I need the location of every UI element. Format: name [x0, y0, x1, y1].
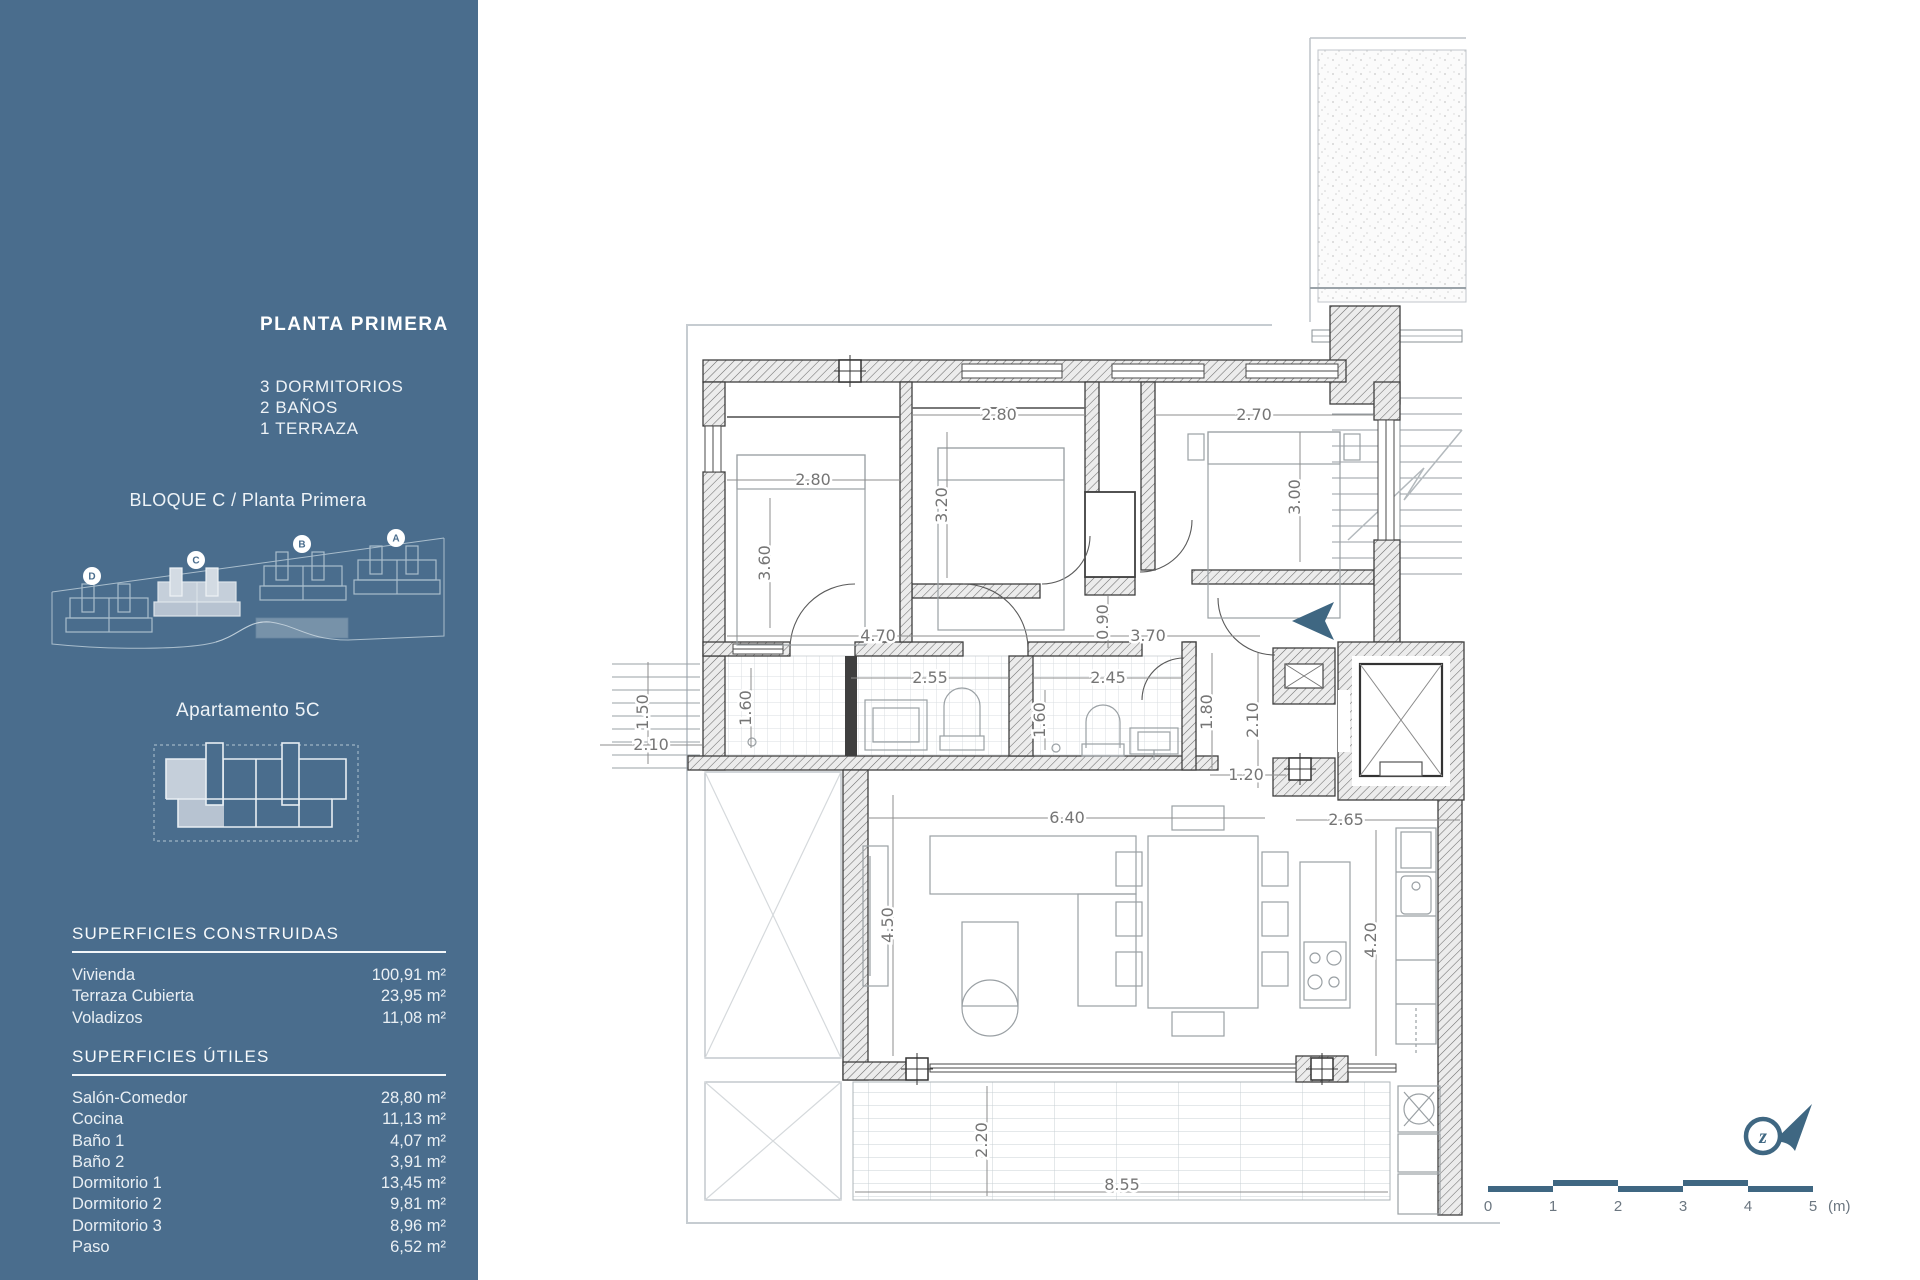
- row-value: 8,96 m²: [390, 1216, 446, 1237]
- dim-label: 2.45: [1090, 668, 1126, 687]
- row-value: 4,07 m²: [390, 1131, 446, 1152]
- scale-bar: 0 1 2 3 4 5 (m): [1488, 1180, 1848, 1224]
- bath1-partition: [845, 656, 857, 756]
- elevator: [1338, 656, 1450, 786]
- table-row: Voladizos 11,08 m²: [72, 1008, 446, 1029]
- dim-label: 1.60: [736, 690, 755, 726]
- feature-terrace: 1 TERRAZA: [260, 418, 404, 439]
- scale-segment: [1488, 1186, 1553, 1192]
- sidebar: PLANTA PRIMERA 3 DORMITORIOS 2 BAÑOS 1 T…: [0, 0, 478, 1280]
- scale-tick: 5: [1809, 1198, 1817, 1215]
- table-row: Vivienda 100,91 m²: [72, 965, 446, 986]
- row-label: Cocina: [72, 1109, 123, 1130]
- north-icon: z: [1737, 1094, 1821, 1174]
- row-label: Salón-Comedor: [72, 1088, 188, 1109]
- dim-label: 2.10: [633, 735, 669, 754]
- dim-label: 1.50: [633, 694, 652, 730]
- dim-label: 3.70: [1130, 626, 1166, 645]
- dim-label: 1.20: [1228, 765, 1264, 784]
- scale-tick: 1: [1549, 1198, 1557, 1215]
- table-row: Cocina 11,13 m²: [72, 1109, 446, 1130]
- divider: [72, 1074, 446, 1076]
- scale-tick: 4: [1744, 1198, 1752, 1215]
- row-label: Paso: [72, 1237, 110, 1258]
- constructed-table: SUPERFICIES CONSTRUIDAS Vivienda 100,91 …: [72, 924, 446, 1029]
- walls: [688, 306, 1464, 1215]
- scale-segment: [1748, 1186, 1813, 1192]
- row-value: 11,13 m²: [382, 1109, 446, 1130]
- dim-label: 0.90: [1093, 604, 1112, 640]
- feature-baths: 2 BAÑOS: [260, 397, 404, 418]
- site-badges: D C B A: [83, 529, 405, 585]
- row-label: Vivienda: [72, 965, 135, 986]
- row-value: 11,08 m²: [382, 1008, 446, 1029]
- divider: [72, 951, 446, 953]
- dim-label: 2.80: [981, 405, 1017, 424]
- dim-label: 6.40: [1049, 808, 1085, 827]
- unit-diagram: [150, 735, 365, 850]
- block-label: BLOQUE C / Planta Primera: [38, 490, 458, 511]
- table-row: Dormitorio 1 13,45 m²: [72, 1173, 446, 1194]
- table-row: Salón-Comedor 28,80 m²: [72, 1088, 446, 1109]
- row-value: 100,91 m²: [372, 965, 446, 986]
- useful-heading: SUPERFICIES ÚTILES: [72, 1047, 446, 1067]
- feature-list: 3 DORMITORIOS 2 BAÑOS 1 TERRAZA: [260, 376, 404, 439]
- dim-label: 2.70: [1236, 405, 1272, 424]
- table-row: Dormitorio 3 8,96 m²: [72, 1216, 446, 1237]
- wardrobe: [1085, 492, 1135, 577]
- useful-table: SUPERFICIES ÚTILES Salón-Comedor 28,80 m…: [72, 1047, 446, 1258]
- row-label: Dormitorio 1: [72, 1173, 162, 1194]
- scale-segment: [1618, 1186, 1683, 1192]
- row-value: 13,45 m²: [381, 1173, 446, 1194]
- table-row: Dormitorio 2 9,81 m²: [72, 1194, 446, 1215]
- row-label: Baño 1: [72, 1131, 124, 1152]
- row-label: Voladizos: [72, 1008, 143, 1029]
- dim-label: 4.20: [1361, 922, 1380, 958]
- table-row: Baño 1 4,07 m²: [72, 1131, 446, 1152]
- badge-c: C: [192, 556, 199, 567]
- dim-label: 3.60: [755, 545, 774, 581]
- row-value: 3,91 m²: [390, 1152, 446, 1173]
- dim-label: 2.20: [972, 1122, 991, 1158]
- vent-shaft: [1285, 664, 1323, 688]
- table-row: Terraza Cubierta 23,95 m²: [72, 986, 446, 1007]
- dim-label: 2.10: [1243, 702, 1262, 738]
- bath1-floor: [725, 656, 1009, 756]
- site-block-a[interactable]: [354, 546, 440, 594]
- row-label: Dormitorio 3: [72, 1216, 162, 1237]
- patio-void: [705, 772, 841, 1200]
- row-value: 23,95 m²: [381, 986, 446, 1007]
- entry-arrow-icon: [1292, 602, 1334, 640]
- scale-tick: 2: [1614, 1198, 1622, 1215]
- row-label: Dormitorio 2: [72, 1194, 162, 1215]
- scale-segment: [1683, 1180, 1748, 1186]
- plan-title: PLANTA PRIMERA: [260, 314, 449, 336]
- dim-label: 2.80: [795, 470, 831, 489]
- row-label: Baño 2: [72, 1152, 124, 1173]
- constructed-heading: SUPERFICIES CONSTRUIDAS: [72, 924, 446, 944]
- site-block-b[interactable]: [260, 552, 346, 600]
- feature-bedrooms: 3 DORMITORIOS: [260, 376, 404, 397]
- site-block-c[interactable]: [154, 568, 240, 616]
- scale-tick: 3: [1679, 1198, 1687, 1215]
- scale-tick: 0: [1484, 1198, 1492, 1215]
- table-row: Paso 6,52 m²: [72, 1237, 446, 1258]
- dim-label: 1.60: [1030, 702, 1049, 738]
- scale-segment: [1553, 1180, 1618, 1186]
- page: 2.80 2.80 2.70 3.60 3.20 3.00 4.70 3.70 …: [0, 0, 1920, 1280]
- site-block-d[interactable]: [66, 584, 152, 632]
- badge-b: B: [298, 540, 305, 551]
- dim-label: 4.70: [860, 626, 896, 645]
- dim-label: 4.50: [878, 907, 897, 943]
- site-map: D C B A: [48, 518, 448, 668]
- dim-label: 2.55: [912, 668, 948, 687]
- dim-label: 3.00: [1285, 479, 1304, 515]
- scale-unit: (m): [1828, 1198, 1851, 1215]
- north-letter: z: [1758, 1126, 1767, 1148]
- dim-label: 2.65: [1328, 810, 1364, 829]
- table-row: Baño 2 3,91 m²: [72, 1152, 446, 1173]
- badge-a: A: [392, 534, 399, 545]
- dim-label: 8.55: [1104, 1175, 1140, 1194]
- row-label: Terraza Cubierta: [72, 986, 194, 1007]
- row-value: 28,80 m²: [381, 1088, 446, 1109]
- neighbour-terrace: [1310, 38, 1466, 322]
- row-value: 9,81 m²: [390, 1194, 446, 1215]
- dimension-labels: 2.80 2.80 2.70 3.60 3.20 3.00 4.70 3.70 …: [633, 405, 1380, 1194]
- badge-d: D: [88, 572, 95, 583]
- apartment-label: Apartamento 5C: [38, 700, 458, 722]
- dim-label: 1.80: [1197, 694, 1216, 730]
- row-value: 6,52 m²: [390, 1237, 446, 1258]
- dim-label: 3.20: [932, 487, 951, 523]
